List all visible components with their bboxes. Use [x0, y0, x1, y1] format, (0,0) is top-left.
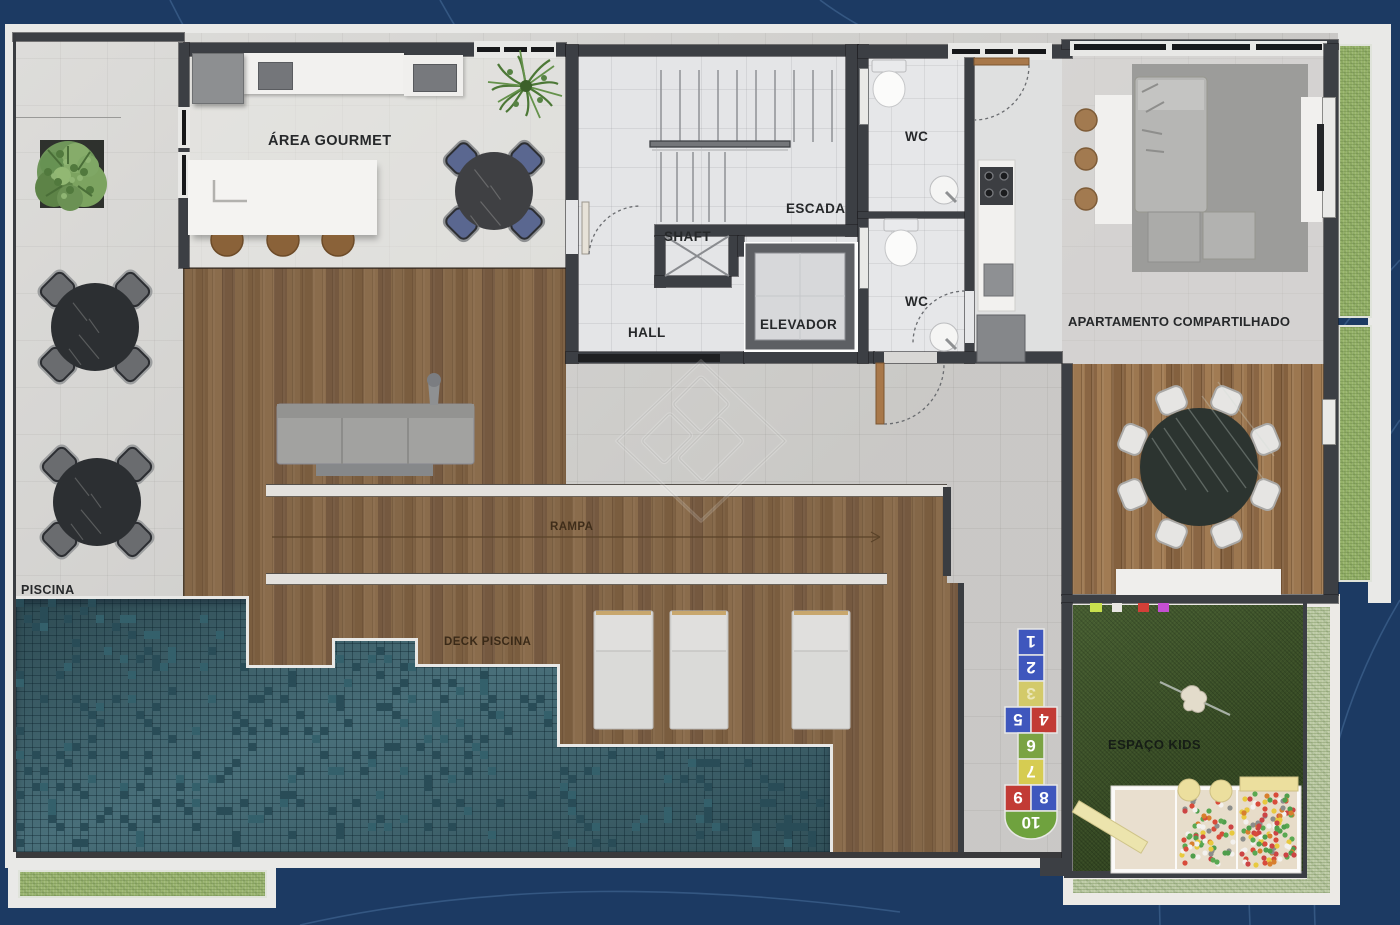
svg-text:2: 2	[1026, 658, 1035, 677]
svg-text:3: 3	[1026, 684, 1035, 703]
svg-text:10: 10	[1022, 813, 1041, 832]
svg-text:1: 1	[1026, 632, 1035, 651]
svg-text:4: 4	[1039, 710, 1049, 729]
svg-text:5: 5	[1013, 710, 1022, 729]
svg-text:8: 8	[1039, 788, 1048, 807]
svg-text:6: 6	[1026, 736, 1035, 755]
svg-text:7: 7	[1026, 762, 1035, 781]
svg-text:9: 9	[1013, 788, 1022, 807]
